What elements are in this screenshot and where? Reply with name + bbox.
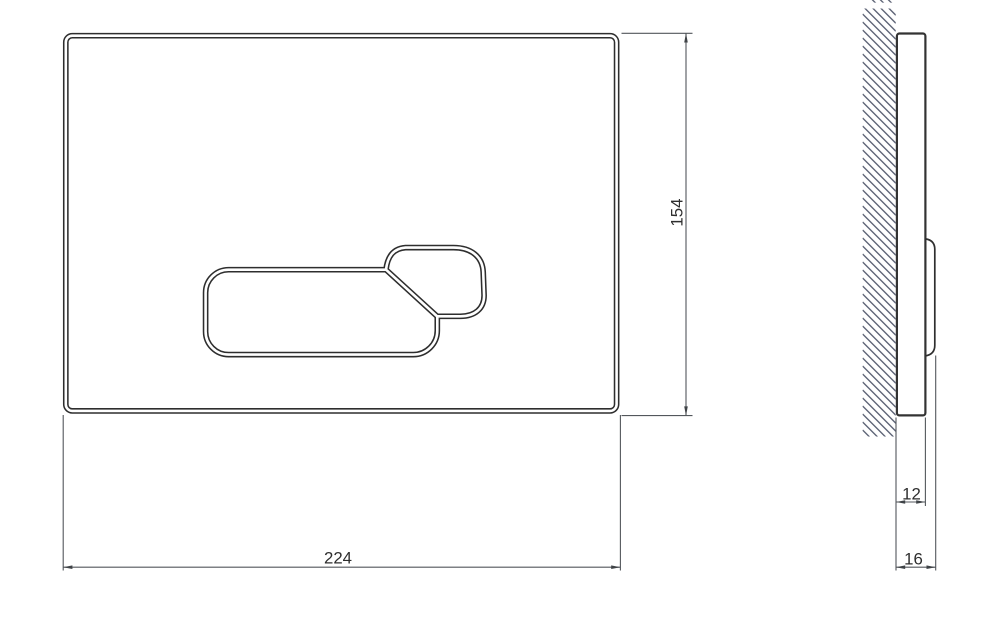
svg-text:154: 154 — [667, 199, 686, 227]
svg-text:16: 16 — [904, 549, 923, 568]
svg-text:224: 224 — [324, 549, 352, 568]
svg-text:12: 12 — [902, 485, 921, 504]
